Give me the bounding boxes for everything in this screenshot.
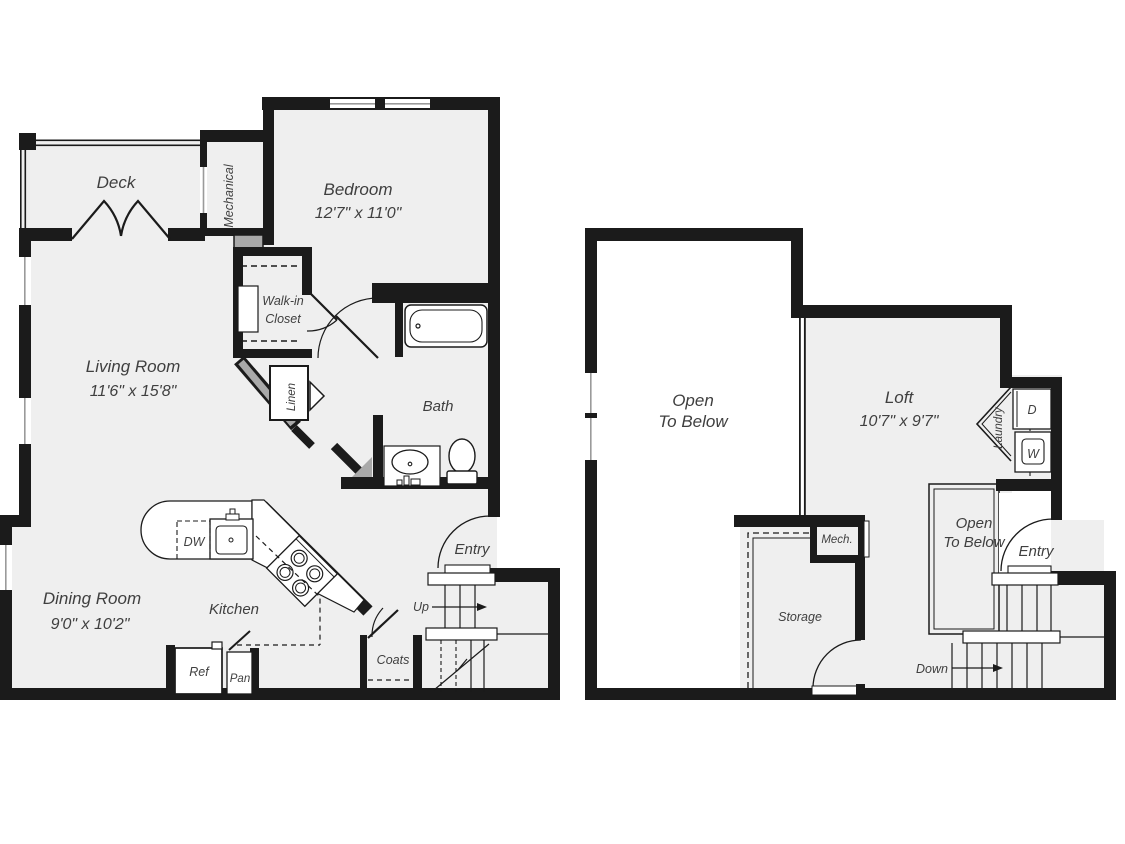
pantry-label: Pan	[230, 673, 250, 685]
refrigerator-label: Ref	[189, 665, 210, 679]
deck-corner-post	[19, 133, 36, 150]
dining-room-label: Dining Room	[43, 589, 141, 608]
living-room-dims: 11'6" x 15'8"	[90, 383, 178, 400]
floor2-plan: Open To Below Loft 10'7" x 9'7" Laundry …	[585, 228, 1116, 700]
mechanical-label: Mechanical	[222, 163, 236, 227]
loft-label: Loft	[885, 388, 915, 407]
entry2-label: Entry	[1018, 543, 1055, 560]
storage-label: Storage	[778, 610, 822, 624]
bath-label: Bath	[423, 398, 454, 415]
linen-label: Linen	[286, 383, 298, 411]
kitchen-label: Kitchen	[209, 601, 259, 618]
washer-label: W	[1027, 447, 1040, 461]
sink-vanity	[384, 446, 440, 486]
loft-dims: 10'7" x 9'7"	[860, 413, 940, 430]
floor1-plan: Deck Mechanical Bedroom 12'7" x 11'0" Wa…	[0, 97, 560, 700]
open-below-main-label-2: To Below	[658, 412, 729, 431]
bedroom-dims: 12'7" x 11'0"	[315, 205, 403, 222]
down-label: Down	[916, 662, 948, 676]
dining-room-dims: 9'0" x 10'2"	[51, 616, 131, 633]
toilet	[447, 439, 477, 484]
closet-shelf	[238, 286, 258, 332]
walkin-closet-label-2: Closet	[265, 312, 301, 326]
deck-label: Deck	[97, 173, 137, 192]
dryer-label: D	[1027, 403, 1036, 417]
floorplan-drawing: Deck Mechanical Bedroom 12'7" x 11'0" Wa…	[0, 0, 1125, 844]
storage-threshold	[812, 686, 858, 695]
living-room-label: Living Room	[86, 357, 181, 376]
coats-label: Coats	[377, 653, 410, 667]
laundry-label: Laundry	[993, 406, 1005, 449]
mech-label: Mech.	[821, 534, 852, 546]
open-below-entry-label-1: Open	[956, 515, 993, 532]
up-label: Up	[413, 600, 429, 614]
floorplan-page: Deck Mechanical Bedroom 12'7" x 11'0" Wa…	[0, 0, 1125, 844]
bathtub	[405, 305, 487, 347]
open-below-main-label-1: Open	[672, 391, 714, 410]
walkin-closet-label-1: Walk-in	[262, 294, 303, 308]
open-below-entry-label-2: To Below	[943, 534, 1005, 551]
entry1-label: Entry	[454, 541, 491, 558]
dishwasher-label: DW	[184, 535, 206, 549]
bedroom-label: Bedroom	[324, 180, 393, 199]
